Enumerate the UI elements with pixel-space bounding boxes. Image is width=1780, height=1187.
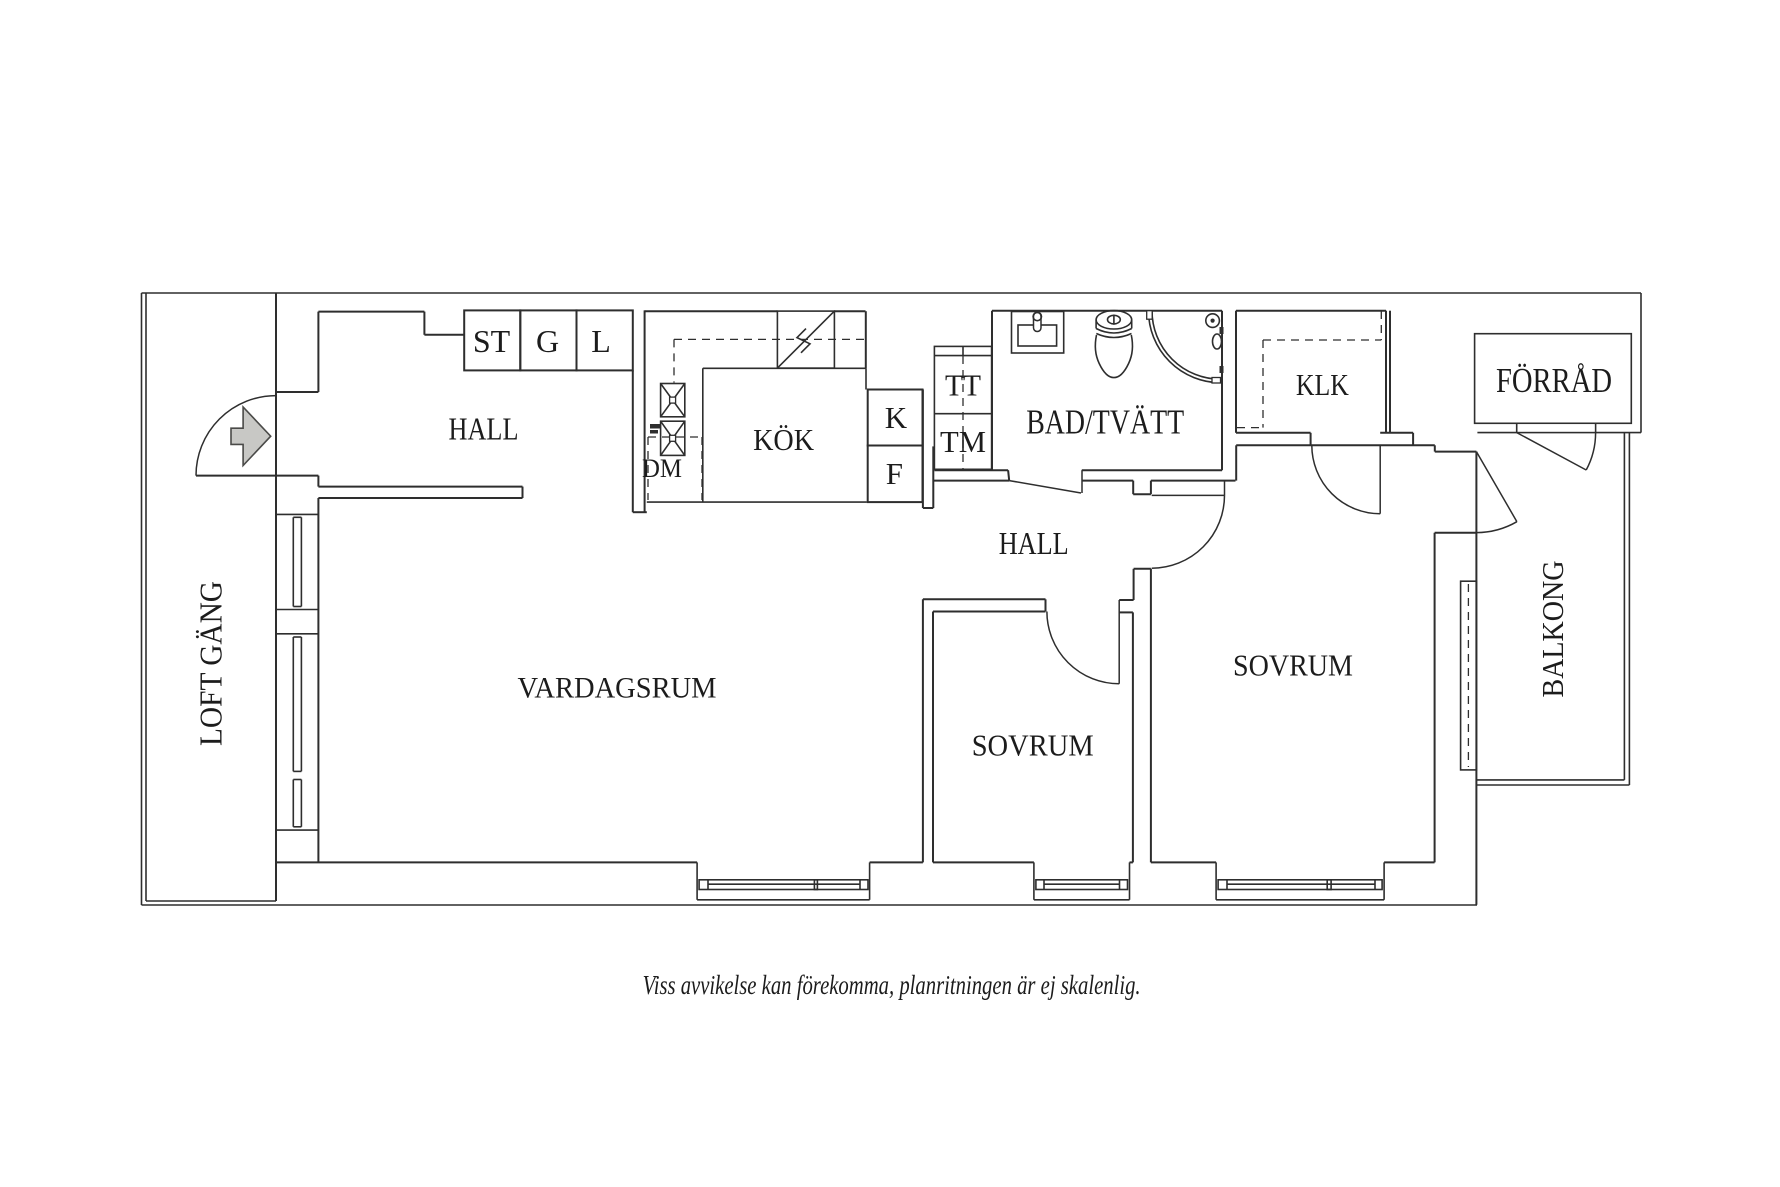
svg-text:HALL: HALL [999,525,1069,561]
svg-text:K: K [885,400,908,435]
svg-text:L: L [591,323,611,359]
svg-text:F: F [886,456,903,491]
svg-text:DM: DM [642,454,682,483]
svg-text:ST: ST [473,323,511,359]
svg-text:BALKONG: BALKONG [1535,561,1570,698]
svg-text:HALL: HALL [449,411,519,447]
svg-text:VARDAGSRUM: VARDAGSRUM [518,672,717,705]
svg-text:KÖK: KÖK [753,422,815,457]
svg-text:SOVRUM: SOVRUM [1233,648,1353,683]
svg-text:FÖRRÅD: FÖRRÅD [1496,361,1612,400]
svg-text:LOFT GÄNG: LOFT GÄNG [193,581,229,746]
svg-text:Viss avvikelse kan förekomma,: Viss avvikelse kan förekomma, planritnin… [643,970,1141,1000]
svg-text:TM: TM [940,424,986,459]
svg-text:KLK: KLK [1296,367,1350,402]
svg-text:TT: TT [945,368,981,403]
svg-text:G: G [536,323,559,359]
svg-text:BAD/TVÄTT: BAD/TVÄTT [1026,404,1184,442]
svg-text:SOVRUM: SOVRUM [972,728,1094,763]
